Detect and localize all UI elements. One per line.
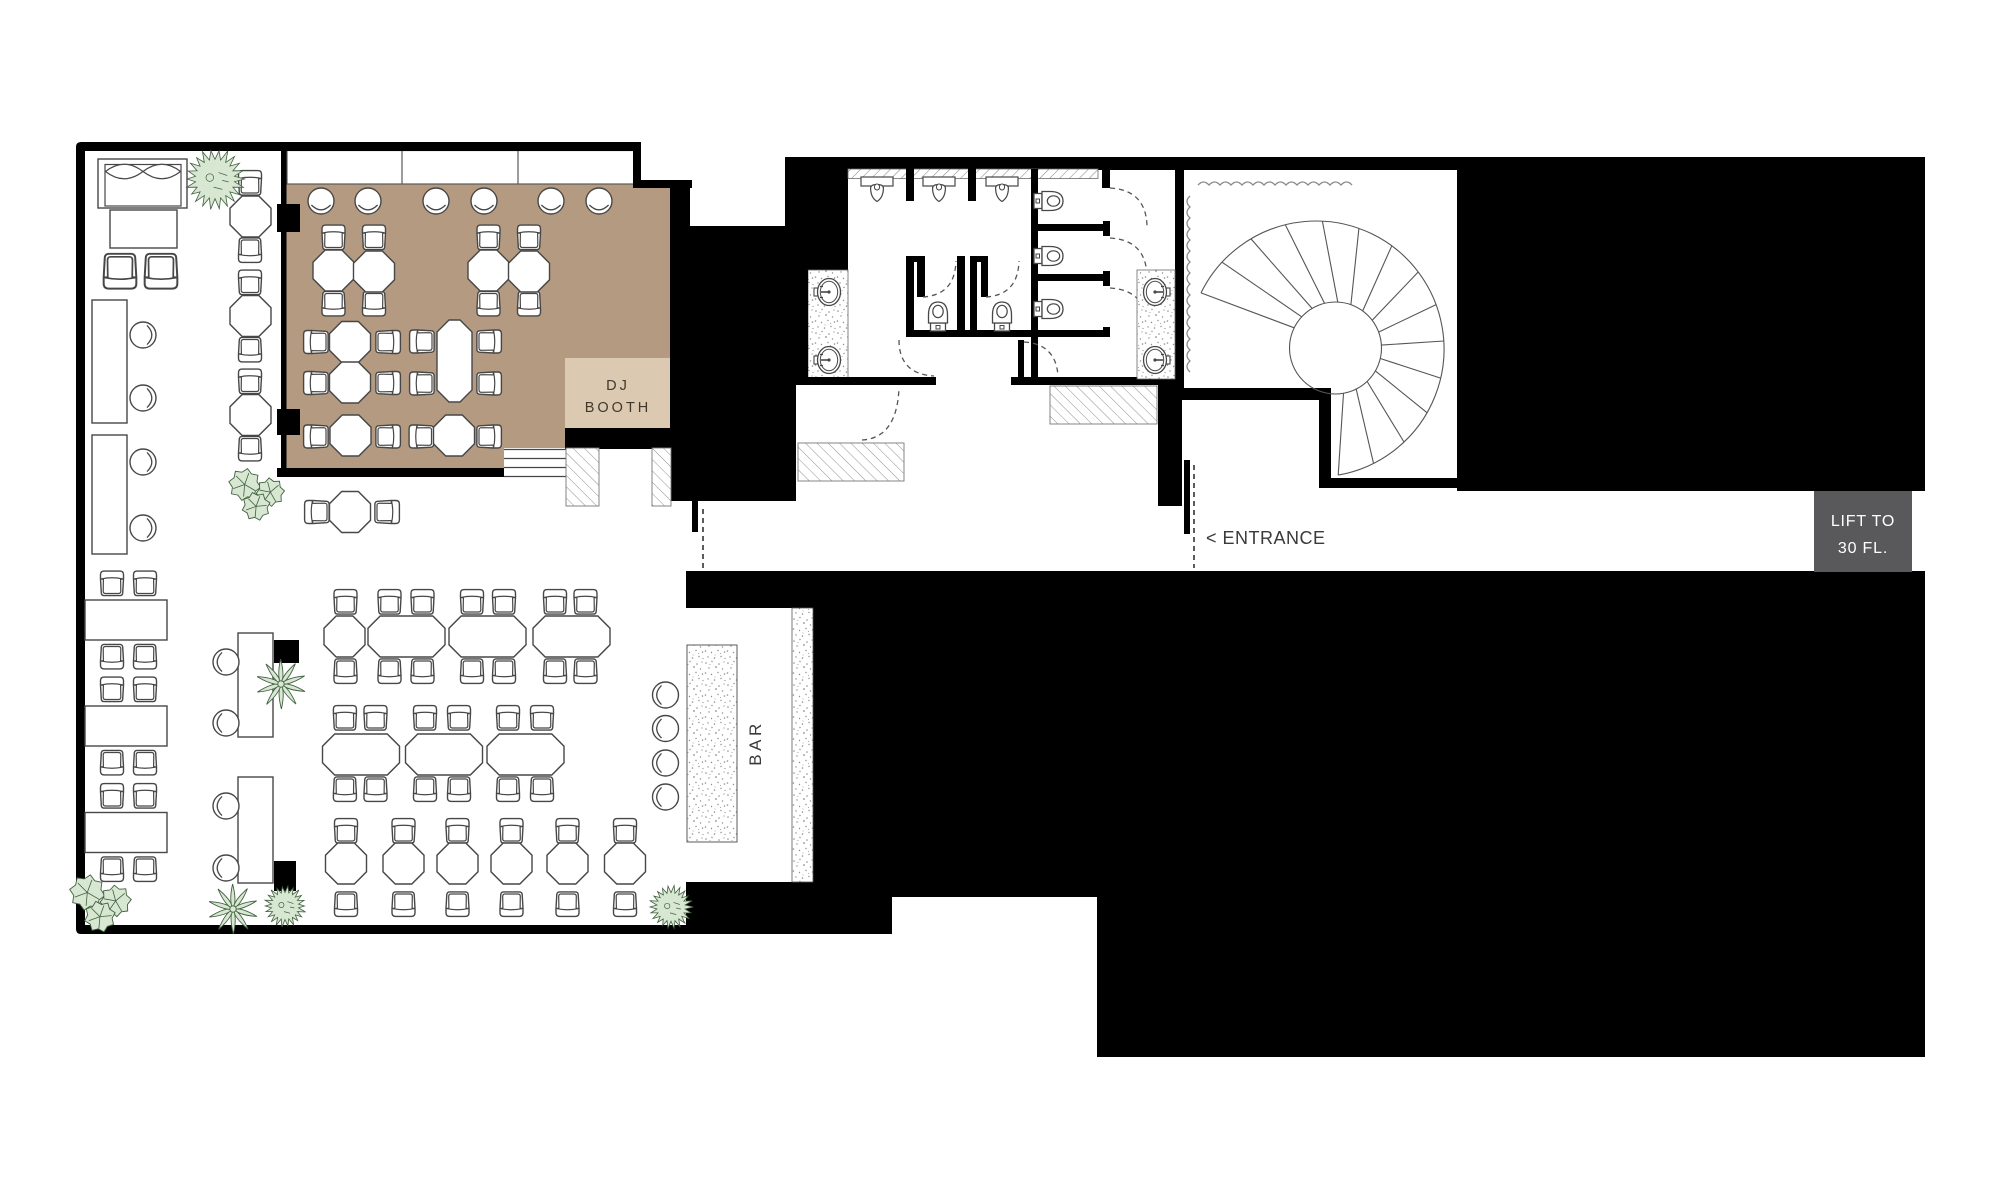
svg-text:< ENTRANCE: < ENTRANCE: [1206, 528, 1326, 548]
svg-text:LIFT TO: LIFT TO: [1831, 513, 1895, 530]
svg-text:30 FL.: 30 FL.: [1838, 540, 1888, 557]
svg-text:DJ: DJ: [606, 378, 630, 394]
svg-text:BAR: BAR: [746, 720, 765, 765]
svg-text:BOOTH: BOOTH: [585, 400, 652, 416]
